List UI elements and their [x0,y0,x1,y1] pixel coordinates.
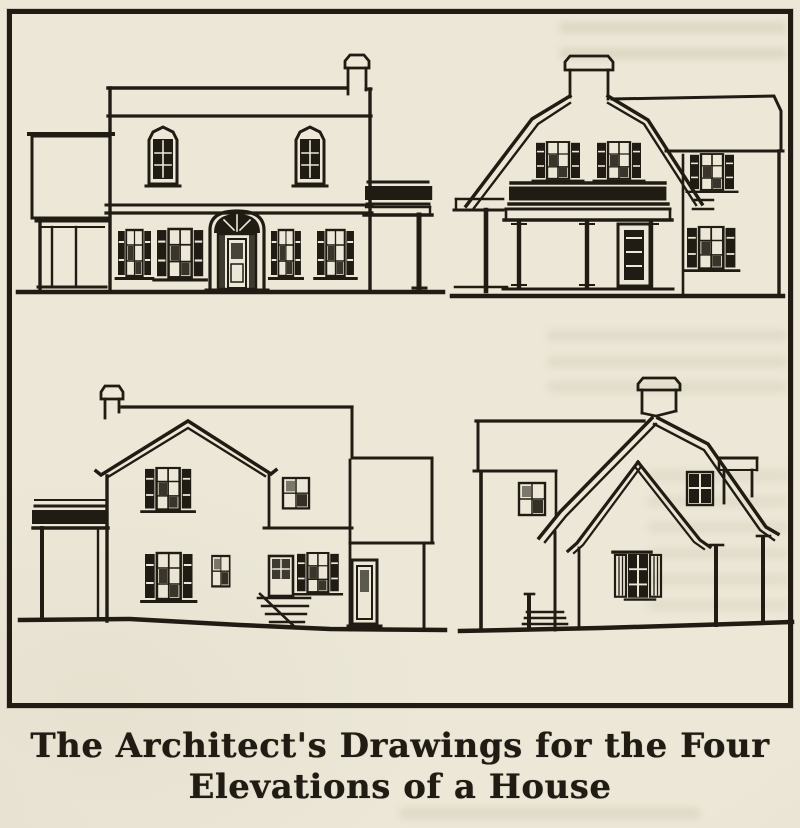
side-elevation [20,386,445,630]
shuttered-window [142,553,196,602]
small-window [283,478,309,508]
elevations-drawing [0,0,800,828]
sun-porch [29,134,113,290]
shuttered-window [154,229,206,280]
roof-dormer-block [719,458,757,503]
gable-window [613,552,661,600]
gable-window [533,142,583,181]
front-elevation [18,55,443,292]
shuttered-window [269,230,303,279]
balcony-balustrade [509,183,668,204]
caption-line-1: The Architect's Drawings for the Four [0,726,800,767]
shuttered-window [142,468,194,512]
arched-entry-door [206,211,268,290]
corner-posts [710,536,770,625]
balcony [33,500,108,620]
shuttered-window [684,227,739,271]
chimney [101,386,123,418]
shuttered-window [687,154,737,192]
caption-line-2: Elevations of a House [0,767,800,808]
main-roof [539,411,778,542]
figure-caption: The Architect's Drawings for the Four El… [0,726,800,808]
shuttered-window [314,230,356,279]
pergola-porch [364,182,432,289]
gable-window [594,142,644,181]
chimney [565,56,613,99]
chimney [638,378,680,413]
narrow-window [212,556,230,586]
shuttered-window [116,230,154,279]
entry-steps [523,594,567,626]
rear-elevation [460,378,792,631]
gambrel-end-elevation [452,56,783,296]
porch-door [618,224,650,286]
projecting-gable [568,462,710,628]
roof-window [687,472,713,505]
roof-parapet [108,88,371,116]
shuttered-window [294,553,342,594]
ground-line [460,622,792,631]
attic-window [146,127,180,186]
attic-window [293,127,327,186]
rear-entry-door [348,560,381,626]
gable-roof [96,421,276,477]
wing-window [519,483,545,515]
